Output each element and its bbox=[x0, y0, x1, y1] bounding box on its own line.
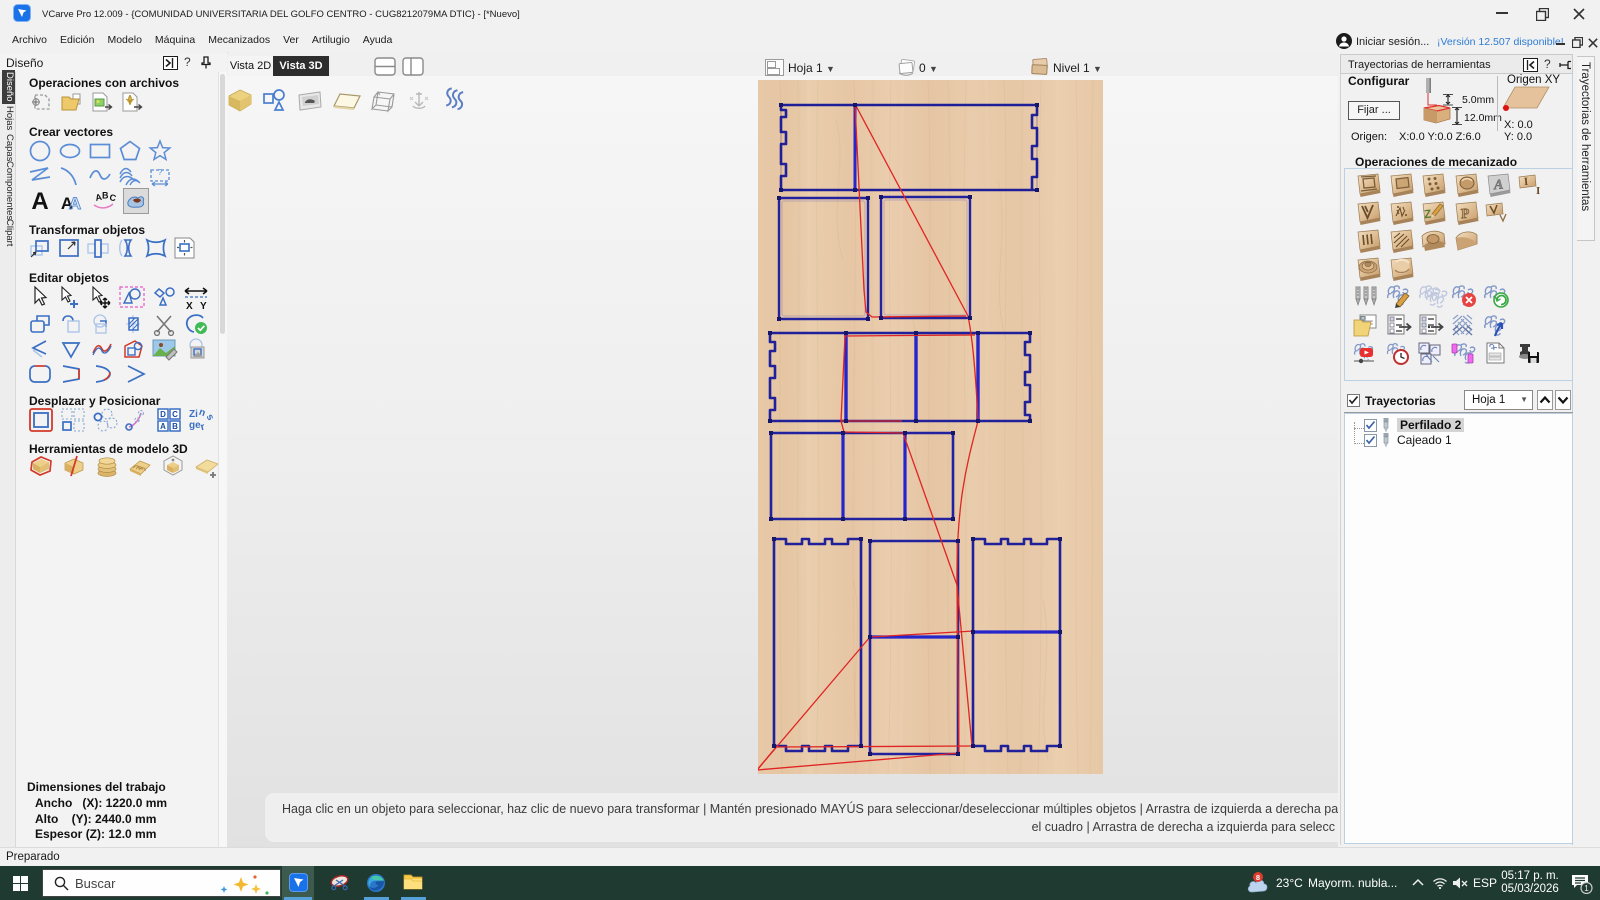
svg-text:I: I bbox=[1536, 185, 1540, 197]
svg-text:Zi: Zi bbox=[189, 409, 198, 420]
svg-text:s: s bbox=[204, 412, 216, 423]
svg-text:A: A bbox=[31, 189, 48, 213]
svg-text:D: D bbox=[160, 410, 166, 419]
svg-text:P: P bbox=[1461, 207, 1471, 223]
svg-text:C: C bbox=[109, 192, 116, 203]
svg-text:r: r bbox=[199, 421, 206, 433]
svg-text:A: A bbox=[160, 422, 166, 431]
svg-text:Z: Z bbox=[1423, 207, 1432, 222]
svg-text:Y: Y bbox=[200, 301, 207, 310]
svg-text:B: B bbox=[102, 191, 109, 201]
svg-text:B: B bbox=[172, 422, 178, 431]
svg-text:1: 1 bbox=[1584, 884, 1589, 893]
svg-text:8: 8 bbox=[1256, 873, 1260, 882]
svg-text:A: A bbox=[69, 194, 81, 213]
svg-text:C: C bbox=[172, 410, 178, 419]
svg-text:A: A bbox=[1492, 178, 1503, 194]
svg-text:X: X bbox=[186, 301, 193, 310]
svg-text:?: ? bbox=[158, 168, 163, 177]
